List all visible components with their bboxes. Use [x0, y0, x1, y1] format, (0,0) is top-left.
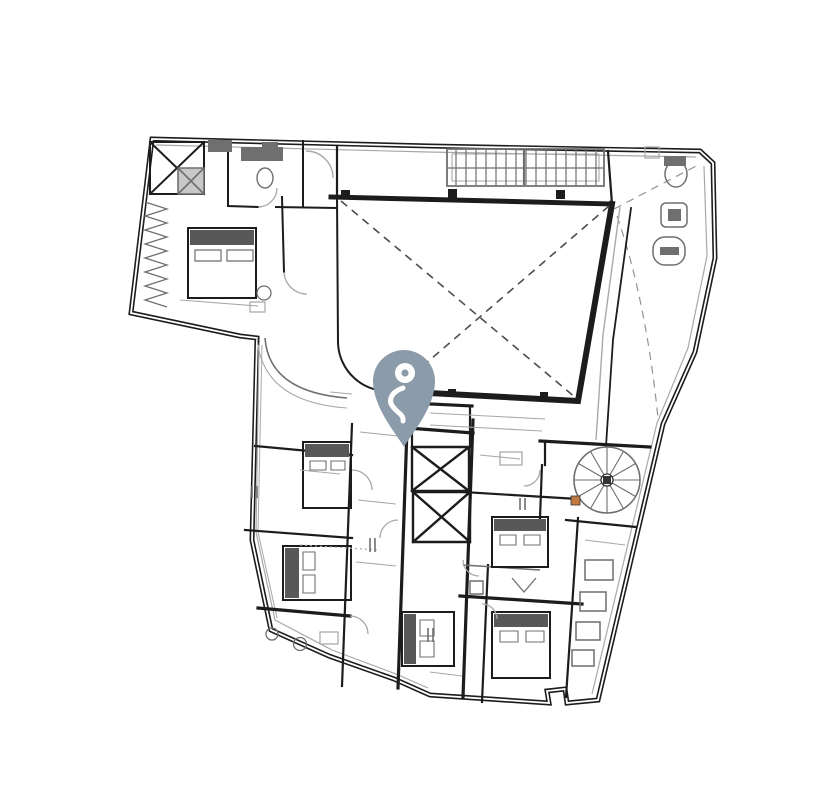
sink-basin — [668, 209, 681, 221]
outline-gap — [131, 139, 715, 703]
floorplan-canvas — [0, 0, 813, 800]
chair-icon — [250, 302, 265, 312]
central-shafts — [412, 447, 470, 542]
pin-icon-dot — [401, 369, 408, 376]
door-annotation-marker — [571, 496, 580, 505]
spiral-newel-post — [603, 476, 611, 484]
wardrobe-zigzag — [145, 202, 167, 307]
outline-outer — [131, 139, 715, 703]
elevator-shaft-central — [413, 492, 470, 542]
main-staircase — [447, 149, 604, 186]
courtyard-top-wall — [331, 197, 612, 204]
bed-headboard — [494, 614, 548, 627]
corridor-arc-2 — [257, 338, 347, 408]
bed-pillows — [420, 620, 434, 657]
bed-pillows — [500, 631, 544, 642]
bed-headboard — [494, 519, 546, 531]
room-walls — [245, 146, 650, 702]
bed-master-headboard — [190, 230, 254, 245]
partition-wall — [282, 197, 284, 272]
location-pin[interactable] — [373, 350, 435, 447]
closet-row — [572, 560, 613, 666]
bed-pillows — [303, 552, 315, 593]
curved-corridor — [257, 338, 347, 408]
bed-pillows — [500, 535, 540, 545]
luggage-rack-icon — [512, 578, 536, 592]
top-left-block — [145, 140, 337, 307]
bed-master-pillows — [195, 250, 253, 261]
stair-shaft — [412, 447, 469, 491]
table-square — [470, 581, 483, 594]
building-outline — [131, 139, 715, 703]
bed-headboard — [285, 548, 299, 598]
bed-headboard — [305, 444, 349, 457]
inner-wall-line-right — [592, 166, 707, 694]
bidet-detail — [660, 247, 679, 255]
walls-medium — [245, 146, 636, 702]
bed-pillows — [310, 461, 345, 470]
floor-plan-svg — [0, 0, 813, 800]
corridor-wall-dark — [606, 208, 631, 446]
master-bedroom — [188, 228, 271, 312]
hidden-dashed-lines — [614, 164, 700, 418]
side-table-icon — [257, 286, 271, 300]
spiral-staircase — [574, 447, 640, 513]
corridor-arc-1 — [265, 338, 347, 398]
bed-headboard — [404, 614, 416, 664]
toilet-topleft-icon — [257, 168, 273, 188]
guest-room-beds — [283, 442, 550, 678]
vanity-box — [320, 632, 338, 644]
shower-arc — [306, 151, 333, 178]
toilet-tank — [664, 156, 686, 166]
fixtures-misc — [266, 452, 613, 666]
